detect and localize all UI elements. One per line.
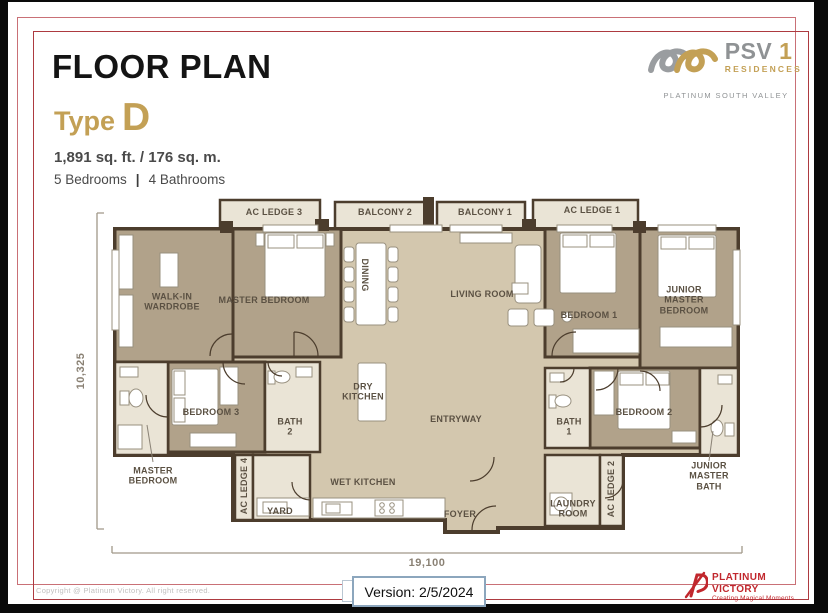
bedrooms-count: 5 Bedrooms [54, 172, 127, 187]
room-label-entryway: ENTRYWAY [430, 414, 482, 424]
room-label-ac-ledge-2: AC LEDGE 2 [606, 461, 616, 518]
floor-plan: AC LEDGE 3 BALCONY 2 BALCONY 1 AC LEDGE … [60, 195, 760, 580]
unit-type-letter: D [122, 96, 150, 140]
room-label-ac-ledge-1: AC LEDGE 1 [564, 205, 621, 215]
room-label-master-bedroom: MASTER BEDROOM [219, 295, 310, 305]
bed-bath-summary: 5 Bedrooms | 4 Bathrooms [54, 172, 225, 187]
room-label-balcony-2: BALCONY 2 [358, 207, 412, 217]
room-label-junior-master-bath: JUNIOR MASTER BATH [689, 460, 729, 491]
room-label-yard: YARD [267, 506, 293, 516]
psv-residences-logo: PSV 1 RESIDENCES PLATINUM SOUTH VALLEY [650, 40, 802, 100]
room-label-junior-master-bedroom: JUNIOR MASTER BEDROOM [646, 284, 722, 315]
room-label-bath-1: BATH 1 [556, 417, 581, 438]
bathrooms-count: 4 Bathrooms [149, 172, 226, 187]
floor-plan-drawing [60, 195, 760, 580]
room-label-master-bedroom-bottom: MASTER BEDROOM [129, 466, 178, 487]
copyright-text: Copyright @ Platinum Victory. All right … [36, 586, 210, 595]
unit-type-word: Type [54, 106, 115, 137]
room-label-ac-ledge-4: AC LEDGE 4 [239, 458, 249, 515]
room-label-dining: DINING [360, 259, 370, 292]
unit-type: Type D [54, 96, 150, 140]
psv-residences-label: RESIDENCES [725, 65, 802, 74]
page-title: FLOOR PLAN [52, 48, 271, 86]
room-label-foyer: FOYER [444, 509, 476, 519]
room-label-bath-2: BATH 2 [277, 417, 302, 438]
version-box: Version: 2/5/2024 [352, 576, 486, 607]
separator: | [136, 172, 140, 187]
psv-tagline: PLATINUM SOUTH VALLEY [650, 91, 802, 100]
room-label-laundry-room: LAUNDRY ROOM [550, 499, 595, 520]
platinum-victory-logo: PLATINUM VICTORY Creating Magical Moment… [684, 571, 814, 604]
room-label-bedroom-2: BEDROOM 2 [616, 407, 673, 417]
room-label-bedroom-1: BEDROOM 1 [561, 310, 618, 320]
dimension-width: 19,100 [409, 557, 446, 569]
room-label-walk-in-wardrobe: WALK-IN WARDROBE [144, 292, 200, 313]
dimension-height: 10,325 [75, 353, 87, 390]
room-label-ac-ledge-3: AC LEDGE 3 [246, 207, 303, 217]
room-label-bedroom-3: BEDROOM 3 [183, 407, 240, 417]
platinum-victory-tagline: Creating Magical Moments [712, 595, 814, 602]
platinum-victory-monogram-icon [684, 571, 708, 604]
room-label-balcony-1: BALCONY 1 [458, 207, 512, 217]
psv-name: PSV 1 [725, 40, 793, 63]
room-label-living-room: LIVING ROOM [450, 289, 513, 299]
room-label-dry-kitchen: DRY KITCHEN [342, 382, 384, 403]
room-label-wet-kitchen: WET KITCHEN [330, 477, 395, 487]
unit-area: 1,891 sq. ft. / 176 sq. m. [54, 149, 221, 166]
platinum-victory-name: PLATINUM VICTORY [712, 572, 814, 595]
psv-waves-icon [646, 40, 722, 87]
brochure-page: FLOOR PLAN Type D 1,891 sq. ft. / 176 sq… [8, 2, 814, 604]
